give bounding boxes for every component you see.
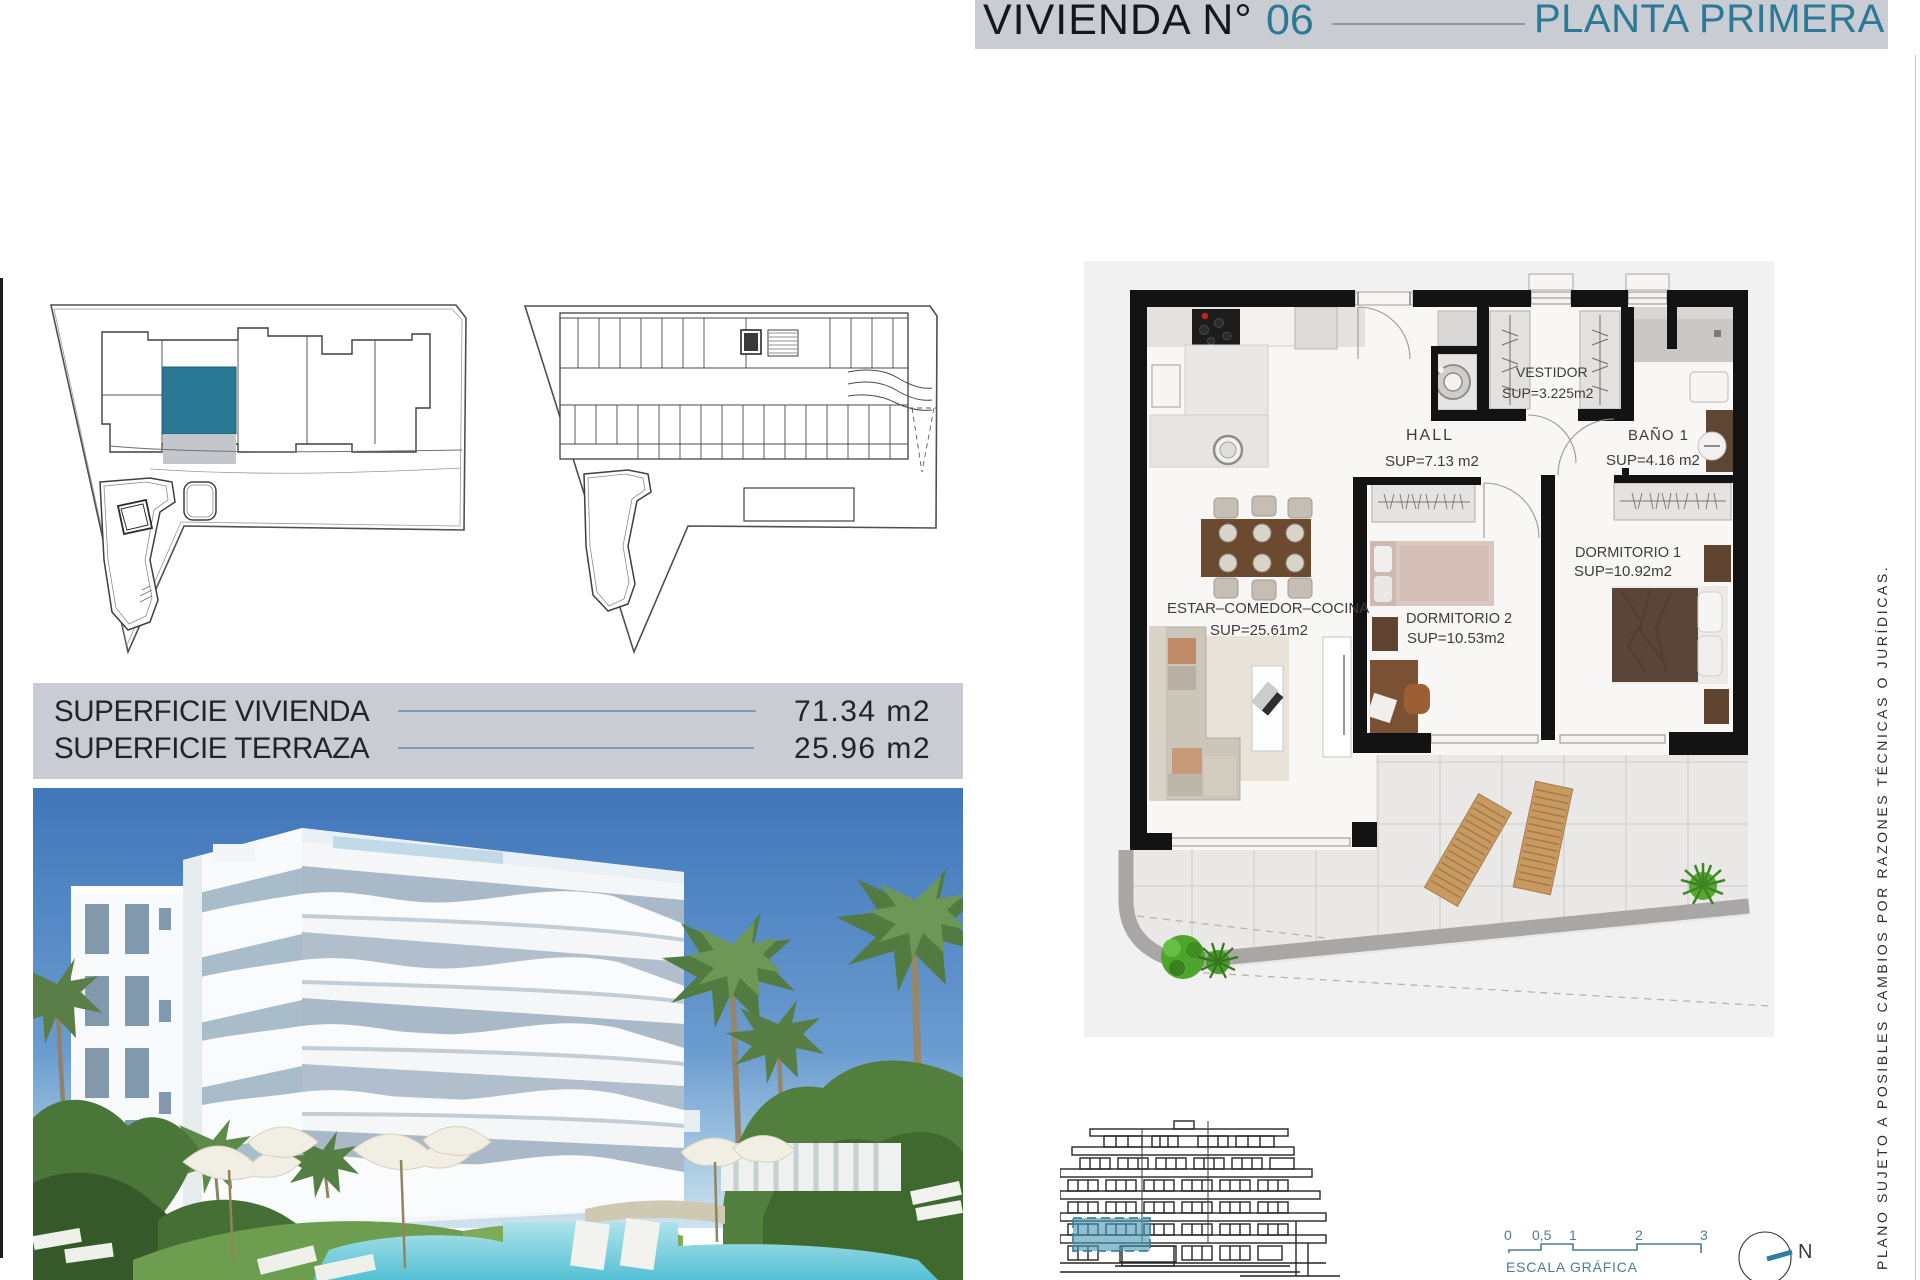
svg-text:SUP=3.225m2: SUP=3.225m2 bbox=[1502, 385, 1594, 401]
svg-text:SUP=25.61m2: SUP=25.61m2 bbox=[1210, 622, 1308, 639]
svg-text:BAÑO 1: BAÑO 1 bbox=[1628, 427, 1689, 444]
svg-text:ESTAR–COMEDOR–COCINA: ESTAR–COMEDOR–COCINA bbox=[1167, 600, 1369, 617]
svg-text:SUP=7.13 m2: SUP=7.13 m2 bbox=[1385, 453, 1479, 470]
svg-text:DORMITORIO 2: DORMITORIO 2 bbox=[1406, 611, 1512, 627]
svg-text:HALL: HALL bbox=[1406, 427, 1454, 444]
svg-text:VESTIDOR: VESTIDOR bbox=[1516, 364, 1588, 380]
svg-text:SUP=10.92m2: SUP=10.92m2 bbox=[1574, 563, 1672, 580]
svg-text:N: N bbox=[1798, 1241, 1812, 1263]
svg-text:SUP=4.16 m2: SUP=4.16 m2 bbox=[1606, 452, 1700, 469]
svg-text:DORMITORIO 1: DORMITORIO 1 bbox=[1575, 545, 1681, 561]
svg-text:SUP=10.53m2: SUP=10.53m2 bbox=[1407, 630, 1505, 647]
